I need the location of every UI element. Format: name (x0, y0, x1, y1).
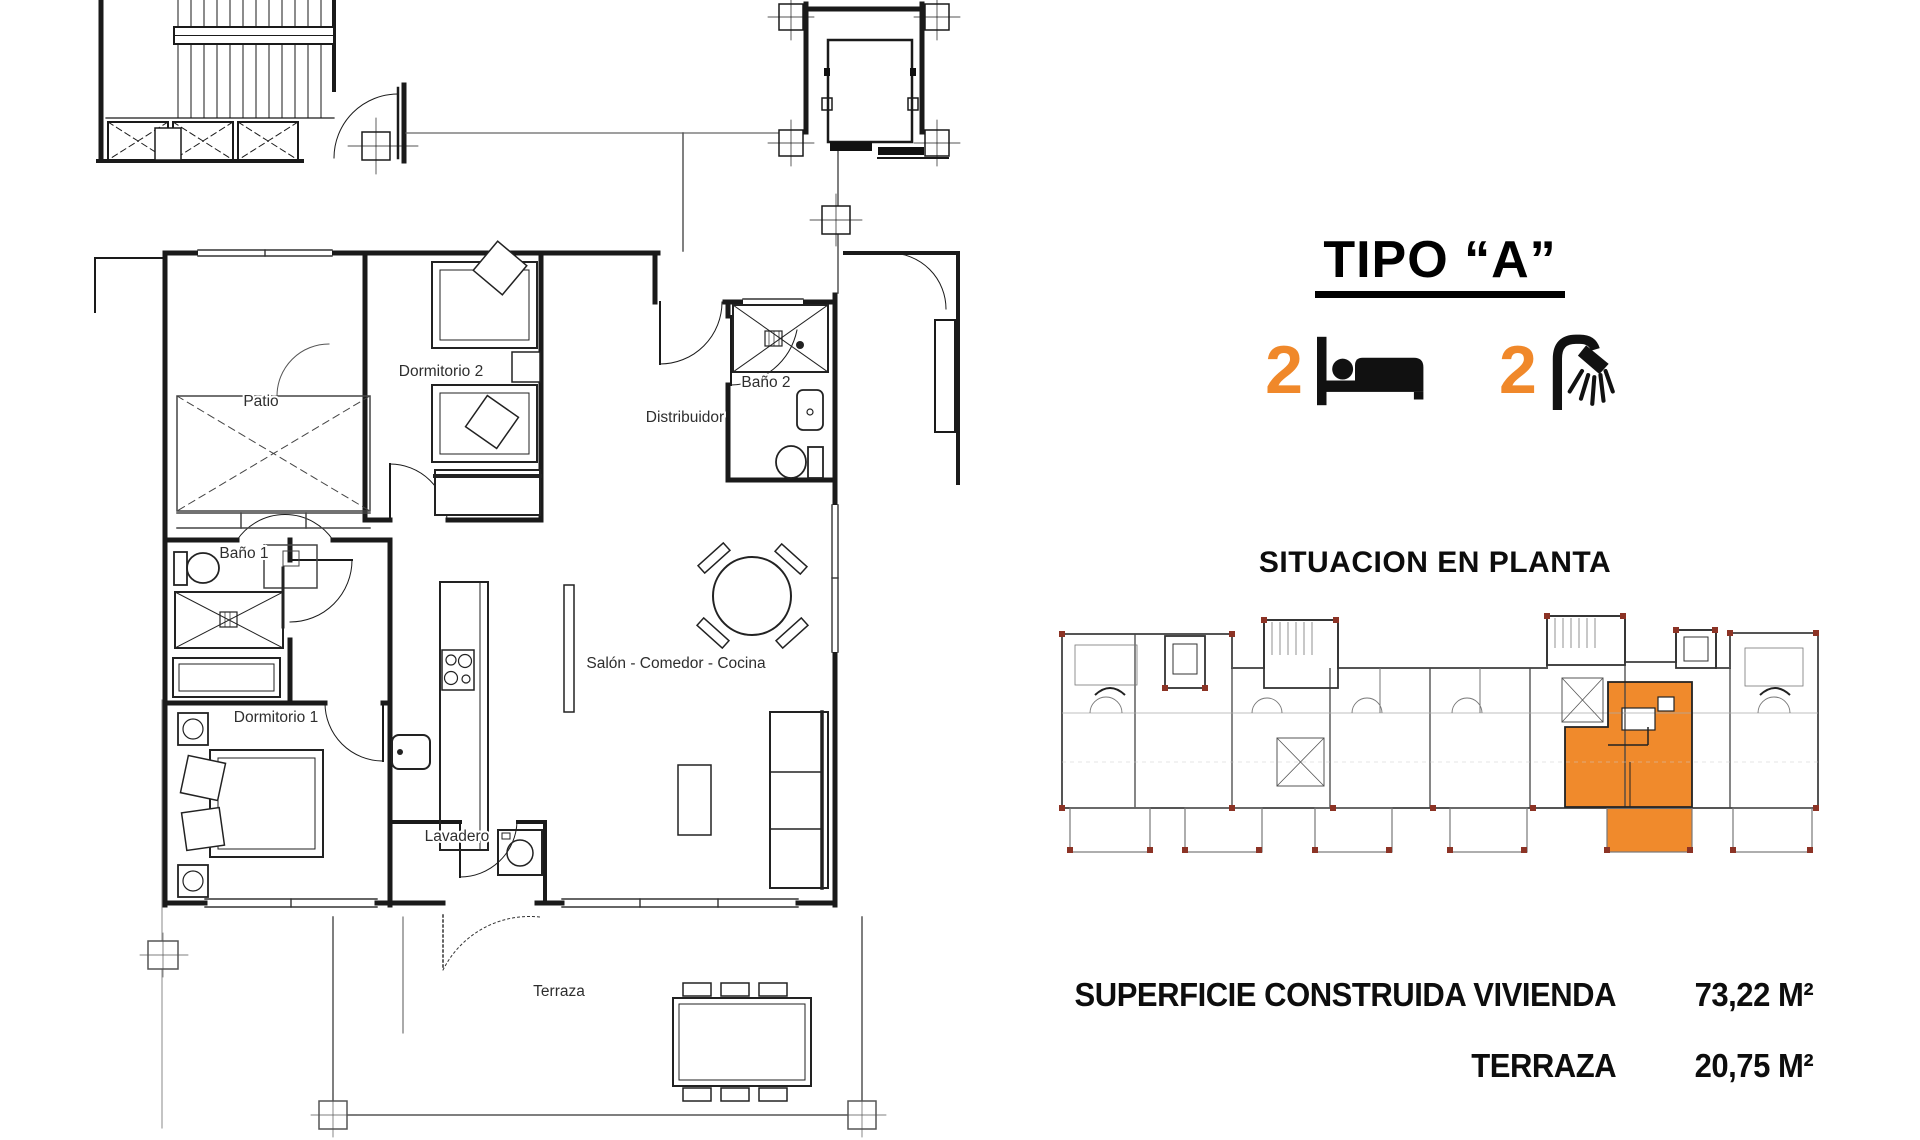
bathroom1-fixtures (173, 552, 283, 697)
room-label-lavadero: Lavadero (425, 828, 490, 845)
bathroom2-fixtures (733, 305, 828, 478)
spec-value-vivienda: 73,22 M² (1694, 976, 1813, 1014)
situation-stairs (1264, 616, 1625, 688)
kitchen-island (392, 582, 574, 850)
bathrooms-feature: 2 (1499, 330, 1615, 412)
hall-column (810, 194, 862, 246)
spec-value-terraza: 20,75 M² (1694, 1047, 1813, 1085)
bedrooms-feature: 2 (1265, 333, 1433, 409)
room-label-salon: Salón - Comedor - Cocina (586, 655, 766, 672)
situation-heading: SITUACION EN PLANTA (1150, 546, 1720, 580)
elevator (768, 0, 960, 166)
room-label-dormitorio1: Dormitorio 1 (234, 709, 318, 726)
stair-landing-door (334, 85, 418, 174)
bedroom1-furniture (178, 713, 323, 897)
spec-label-vivienda: SUPERFICIE CONSTRUIDA VIVIENDA (1075, 976, 1616, 1014)
floor-plan-svg: Patio Dormitorio 2 Baño 2 Distribuidor B… (0, 0, 1000, 1140)
room-label-dormitorio2: Dormitorio 2 (399, 363, 483, 380)
laundry-fixtures (498, 830, 542, 875)
plan-sheet: Patio Dormitorio 2 Baño 2 Distribuidor B… (0, 0, 1920, 1140)
staircase (98, 0, 334, 161)
room-label-bano2: Baño 2 (741, 374, 790, 391)
room-label-bano1: Baño 1 (219, 545, 268, 562)
light-wells (1277, 678, 1603, 786)
bed-icon (1315, 333, 1433, 409)
shower-icon (1549, 330, 1615, 412)
neighbour-unit (845, 253, 958, 483)
situation-plan-svg (1048, 600, 1848, 880)
situation-elevators (1165, 630, 1716, 688)
elevator-cabin (828, 40, 912, 142)
bathroom-count: 2 (1499, 340, 1537, 401)
room-label-terraza: Terraza (533, 983, 585, 1000)
terrace-row (1070, 808, 1812, 852)
spec-label-terraza: TERRAZA (1471, 1047, 1616, 1085)
room-label-distribuidor: Distribuidor (646, 409, 724, 426)
building-outline (1062, 616, 1818, 808)
type-title: TIPO “A” (1170, 234, 1710, 298)
room-label-patio: Patio (243, 393, 278, 410)
terrace-table (673, 983, 811, 1101)
salon-furniture (678, 543, 828, 888)
feature-row: 2 2 (1170, 330, 1710, 412)
type-title-text: TIPO “A” (1315, 234, 1564, 298)
bedroom-count: 2 (1265, 340, 1303, 401)
